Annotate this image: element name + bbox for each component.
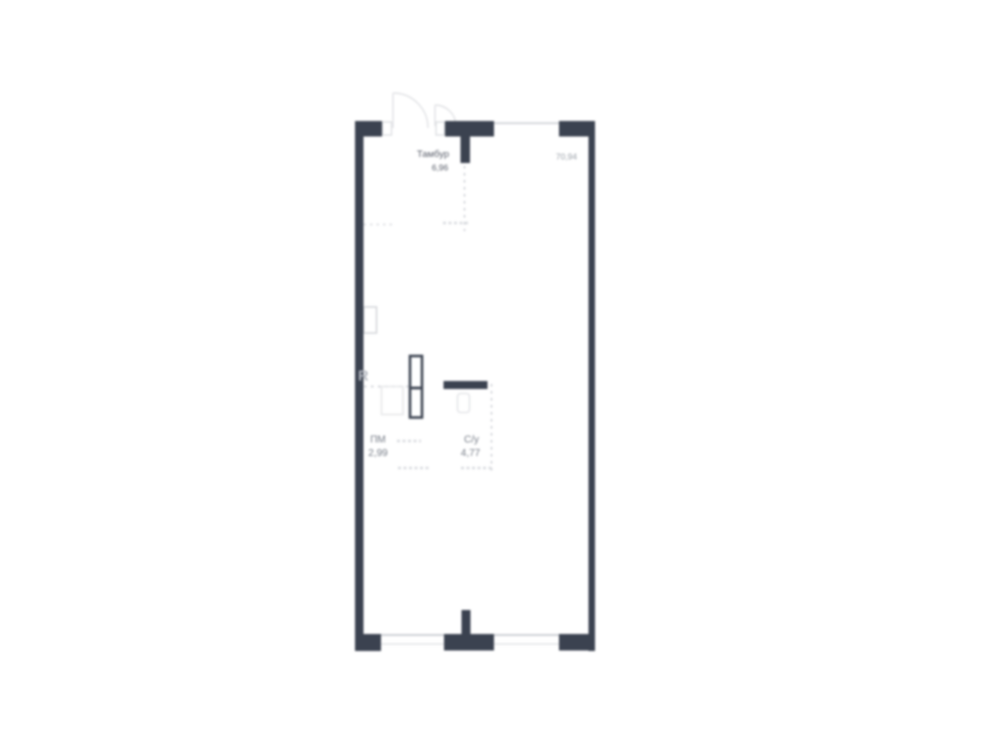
- svg-text:2,99: 2,99: [368, 448, 388, 459]
- svg-text:6,96: 6,96: [432, 163, 449, 173]
- svg-text:4,77: 4,77: [461, 448, 481, 459]
- svg-text:R: R: [358, 369, 369, 385]
- svg-text:ПМ: ПМ: [370, 435, 386, 446]
- svg-text:С/у: С/у: [464, 435, 479, 446]
- svg-text:Тамбур: Тамбур: [417, 149, 449, 160]
- svg-text:70,94: 70,94: [556, 152, 578, 162]
